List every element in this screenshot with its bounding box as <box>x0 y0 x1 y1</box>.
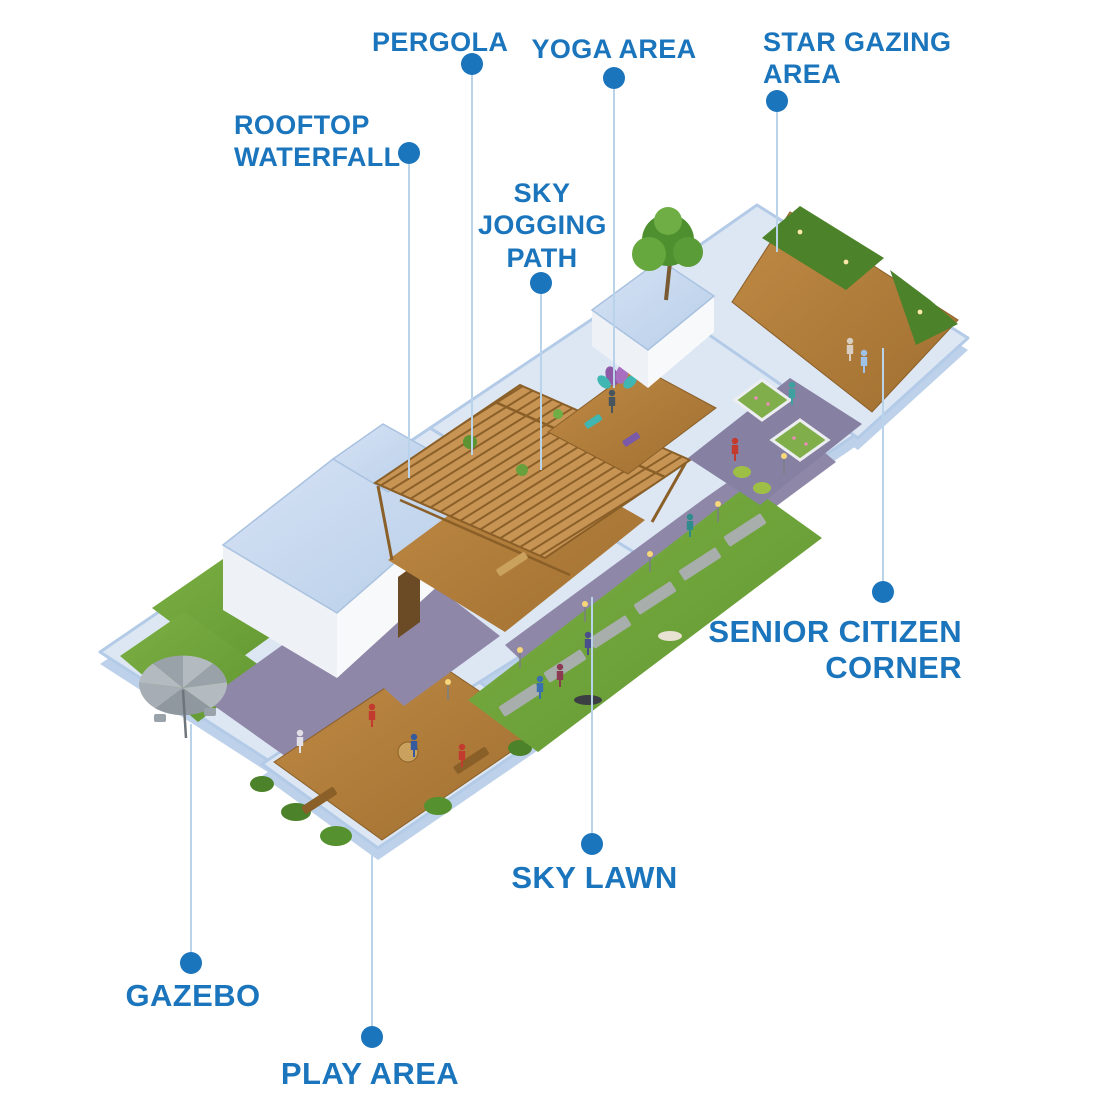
label-play-area: PLAY AREA <box>270 1056 470 1092</box>
callout-dot <box>361 1026 383 1048</box>
callout-line <box>408 164 410 478</box>
rooftop-render <box>0 0 1112 1112</box>
callout-line <box>540 294 542 470</box>
label-senior-citizen-corner: SENIOR CITIZEN CORNER <box>688 614 962 685</box>
callout-dot <box>398 142 420 164</box>
callout-line <box>776 112 778 252</box>
callout-dot <box>530 272 552 294</box>
callout-line <box>190 724 192 952</box>
label-gazebo: GAZEBO <box>118 978 268 1014</box>
callout-dot <box>603 67 625 89</box>
callout-line <box>471 74 473 455</box>
label-sky-jogging-path: SKY JOGGING PATH <box>478 177 606 274</box>
callout-line <box>882 348 884 581</box>
callout-dot <box>581 833 603 855</box>
label-sky-lawn: SKY LAWN <box>497 860 692 896</box>
callout-dot <box>766 90 788 112</box>
label-star-gazing-area: STAR GAZING AREA <box>763 26 963 91</box>
callout-line <box>591 597 593 833</box>
callout-dot <box>180 952 202 974</box>
callout-line <box>613 89 615 388</box>
callout-line <box>371 850 373 1026</box>
label-rooftop-waterfall: ROOFTOP WATERFALL <box>234 109 399 174</box>
callout-dot <box>872 581 894 603</box>
rooftop-amenity-diagram: PERGOLA ROOFTOP WATERFALL SKY JOGGING PA… <box>0 0 1112 1112</box>
label-pergola: PERGOLA <box>372 26 502 58</box>
label-yoga-area: YOGA AREA <box>528 33 700 65</box>
